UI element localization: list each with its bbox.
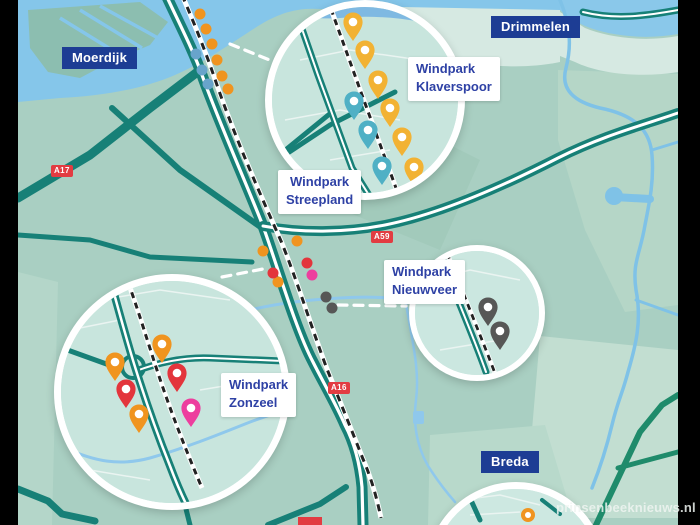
road-badge-a17: A17 [51,165,73,177]
watermark: prinsenbeeknieuws.nl [556,500,696,515]
windpark-label-line: Nieuwveer [392,281,457,299]
route-dot-blue [191,49,202,60]
route-dot-gray [321,292,332,303]
route-dot-red [302,258,313,269]
windpark-map: Moerdijk Drimmelen Breda Windpark Klaver… [0,0,700,525]
turbine-pin-orange [521,508,535,522]
road-badge-a59: A59 [371,231,393,243]
route-dot-orange [207,39,218,50]
windpark-label-line: Windpark [416,60,492,78]
letterbox-strip-right [678,0,700,525]
letterbox-strip-left [0,0,18,525]
route-dot-orange [195,9,206,20]
road-badge-a16: A16 [328,382,350,394]
windpark-label-line: Zonzeel [229,394,288,412]
route-dot-orange [217,71,228,82]
windpark-label-streepland: Windpark Streepland [278,170,361,214]
turbine-pins-breda [521,508,535,522]
route-dot-gray [327,303,338,314]
road-badge-partial [298,517,322,525]
route-dot-orange [201,24,212,35]
windpark-label-line: Streepland [286,191,353,209]
city-label-breda: Breda [481,451,539,473]
route-dot-red [268,268,279,279]
windpark-label-nieuwveer: Windpark Nieuwveer [384,260,465,304]
route-dot-pink [307,270,318,281]
windpark-label-line: Windpark [229,376,288,394]
route-dot-orange [258,246,269,257]
city-label-drimmelen: Drimmelen [491,16,580,38]
city-label-moerdijk: Moerdijk [62,47,137,69]
windpark-label-line: Klaverspoor [416,78,492,96]
windpark-label-line: Windpark [286,173,353,191]
route-dot-orange [212,55,223,66]
windpark-label-zonzeel: Windpark Zonzeel [221,373,296,417]
route-dot-orange [223,84,234,95]
windpark-label-klaverspoor: Windpark Klaverspoor [408,57,500,101]
route-dot-blue [203,79,214,90]
route-dot-blue [197,65,208,76]
route-dot-orange [292,236,303,247]
windpark-label-line: Windpark [392,263,457,281]
